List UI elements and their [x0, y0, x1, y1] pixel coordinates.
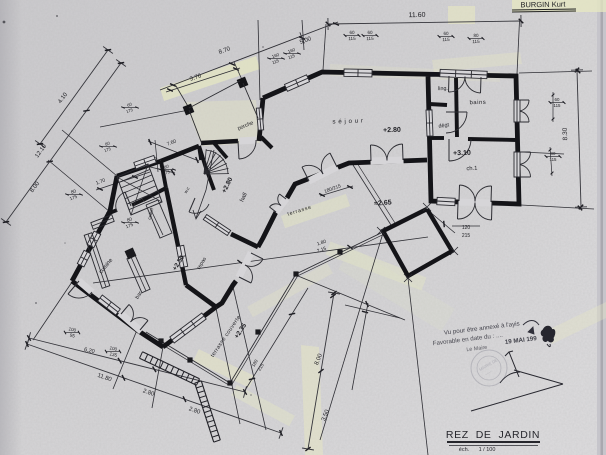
svg-text:80: 80	[473, 33, 479, 38]
svg-text:ch.1: ch.1	[466, 166, 477, 172]
svg-text:bains: bains	[469, 100, 486, 107]
svg-text:60: 60	[555, 97, 560, 102]
svg-text:115: 115	[366, 36, 374, 41]
svg-text:8.30: 8.30	[562, 127, 569, 140]
svg-text:11.60: 11.60	[408, 12, 425, 19]
svg-text:115: 115	[442, 37, 450, 42]
svg-text:REZ DE JARDIN: REZ DE JARDIN	[446, 429, 540, 441]
svg-text:+2.80: +2.80	[383, 127, 401, 135]
svg-text:≈2.65: ≈2.65	[374, 199, 392, 207]
svg-text:60: 60	[349, 30, 355, 35]
svg-text:115: 115	[472, 39, 480, 44]
svg-text:BURGIN Kurt: BURGIN Kurt	[520, 0, 566, 9]
svg-text:éch.: éch.	[459, 447, 470, 453]
svg-text:1 / 100: 1 / 100	[479, 447, 496, 453]
svg-text:115: 115	[554, 103, 562, 108]
svg-text:115: 115	[348, 36, 356, 41]
svg-text:+3.10: +3.10	[453, 150, 471, 158]
svg-text:s é j o u r: s é j o u r	[332, 117, 363, 125]
svg-text:60: 60	[367, 30, 373, 35]
svg-text:ling.: ling.	[438, 86, 448, 92]
svg-text:215: 215	[462, 233, 471, 239]
svg-text:60: 60	[443, 31, 449, 36]
